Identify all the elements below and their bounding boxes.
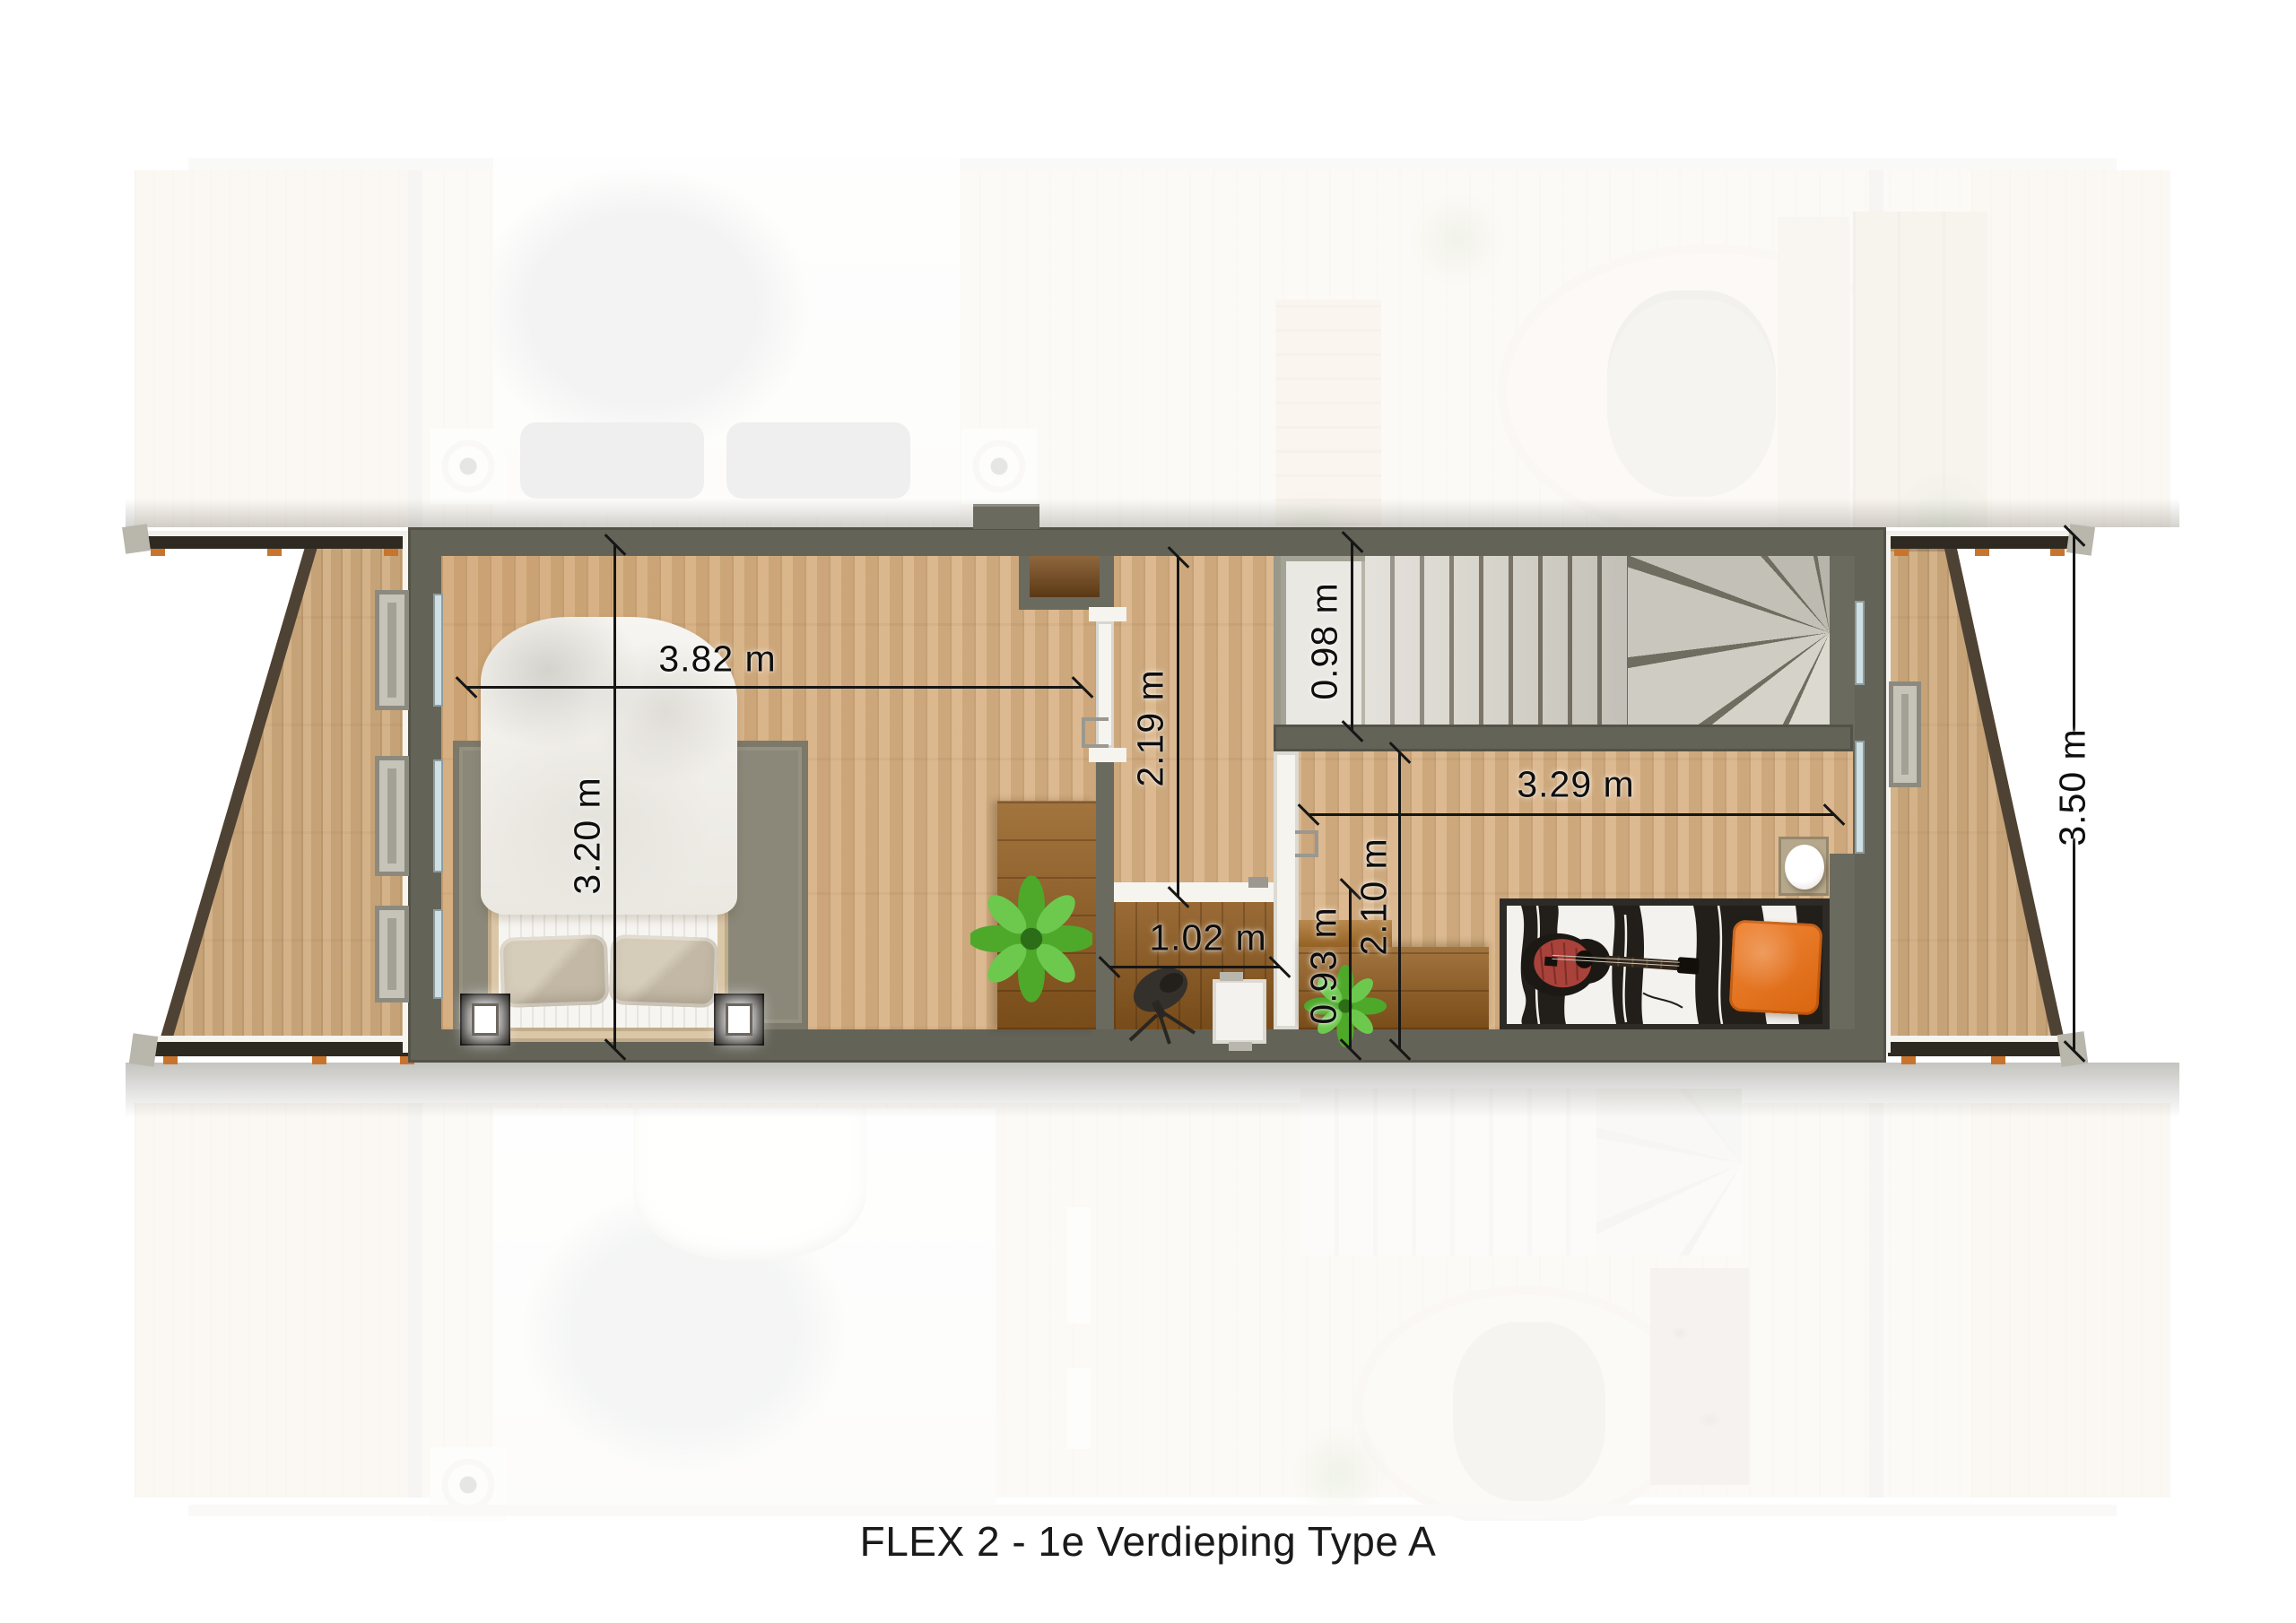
dimension-line [1177,558,1179,897]
balcony-right-rail-top [1886,536,2076,549]
window-glass [435,761,441,871]
box-tab [1220,972,1243,981]
orange-pillow [1728,919,1822,1015]
rail-foot [1894,549,1909,556]
dimension-line [466,686,1083,689]
stair-straight-treads [1365,556,1628,726]
wall-pilaster [1830,556,1855,741]
window-glass [435,595,441,705]
window-glass [435,911,441,997]
door-jamb [1089,748,1126,762]
dimension-label-storage-width: 1.02 m [1149,917,1266,959]
nightstand-left [460,994,510,1046]
rail-foot [163,1056,178,1064]
dimension-label-bedroom2-depth: 2.10 m [1353,838,1396,955]
plan-title: FLEX 2 - 1e Verdieping Type A [0,1517,2296,1566]
rail-foot [151,549,165,556]
dimension-line [2073,838,2075,1051]
plant [970,872,1092,1006]
rail-foot [2050,549,2065,556]
dimension-line [1349,890,1352,1049]
bed-pillow [500,934,610,1008]
balcony-left-rail-top [133,536,418,549]
dimension-label-balcony-depth: 3.50 m [2052,728,2094,846]
rail-foot [267,549,282,556]
rail-foot [384,549,398,556]
dimension-line [1309,813,1834,816]
door2-leaf-wall [1274,751,1299,1029]
balcony-left-trim-bottom [152,1036,413,1042]
window-glass [1857,742,1863,852]
dimension-line [613,545,616,1049]
window-recess [375,756,409,876]
storage-white-box [1213,979,1266,1044]
stair-threshold [1274,556,1281,726]
first-floor-plan: 3.82 m 3.20 m 2.19 m 0.98 m 3.29 m 2.10 … [0,0,2296,1623]
box-tab [1229,1042,1252,1051]
window-recess [1889,681,1921,787]
chimney-bump [973,504,1039,529]
closet-frame-clip [1248,877,1268,888]
bedroom2-lamp [1785,845,1824,890]
rail-foot [1991,1056,2005,1064]
door2-handle [1295,830,1318,857]
wardrobe-nook [1030,556,1100,597]
dimension-line [2073,536,2075,735]
dimension-line [1398,753,1401,1049]
rail-foot [312,1056,326,1064]
dimension-line [1109,966,1280,968]
lamp [472,1003,499,1036]
dimension-label-bedroom1-width: 3.82 m [658,638,776,681]
door-jamb [1089,607,1126,621]
nightstand-right [714,994,764,1046]
window-glass [1857,603,1863,683]
dimension-label-landing-depth: 2.19 m [1130,669,1172,786]
rail-foot [1975,549,1989,556]
window-recess [375,590,409,710]
balcony-left-rail-cap [122,524,151,554]
dimension-line [1351,542,1353,731]
dimension-label-bedroom1-depth: 3.20 m [567,777,609,894]
lamp [726,1003,752,1036]
balcony-right-trim-bottom [1888,1036,2067,1042]
dimension-label-bedroom2-width: 3.29 m [1517,764,1634,806]
guitar [1509,906,1706,1011]
balcony-right-rail-bottom [1888,1042,2073,1056]
dimension-label-stairs-width: 0.98 m [1304,582,1346,699]
wall-pilaster [1830,854,1855,1029]
dimension-label-passage-width: 0.93 m [1303,907,1345,1024]
bed-pillow [609,934,719,1008]
floor-plan-canvas: 3.82 m 3.20 m 2.19 m 0.98 m 3.29 m 2.10 … [0,0,2296,1623]
balcony-left-rail-cap [129,1033,158,1067]
music-stand [1119,958,1209,1047]
balcony-left-rail-bottom [151,1042,416,1056]
rail-foot [1901,1056,1916,1064]
door-handle [1082,717,1109,748]
window-recess [375,906,409,1002]
stair-winder-treads [1628,556,1830,726]
